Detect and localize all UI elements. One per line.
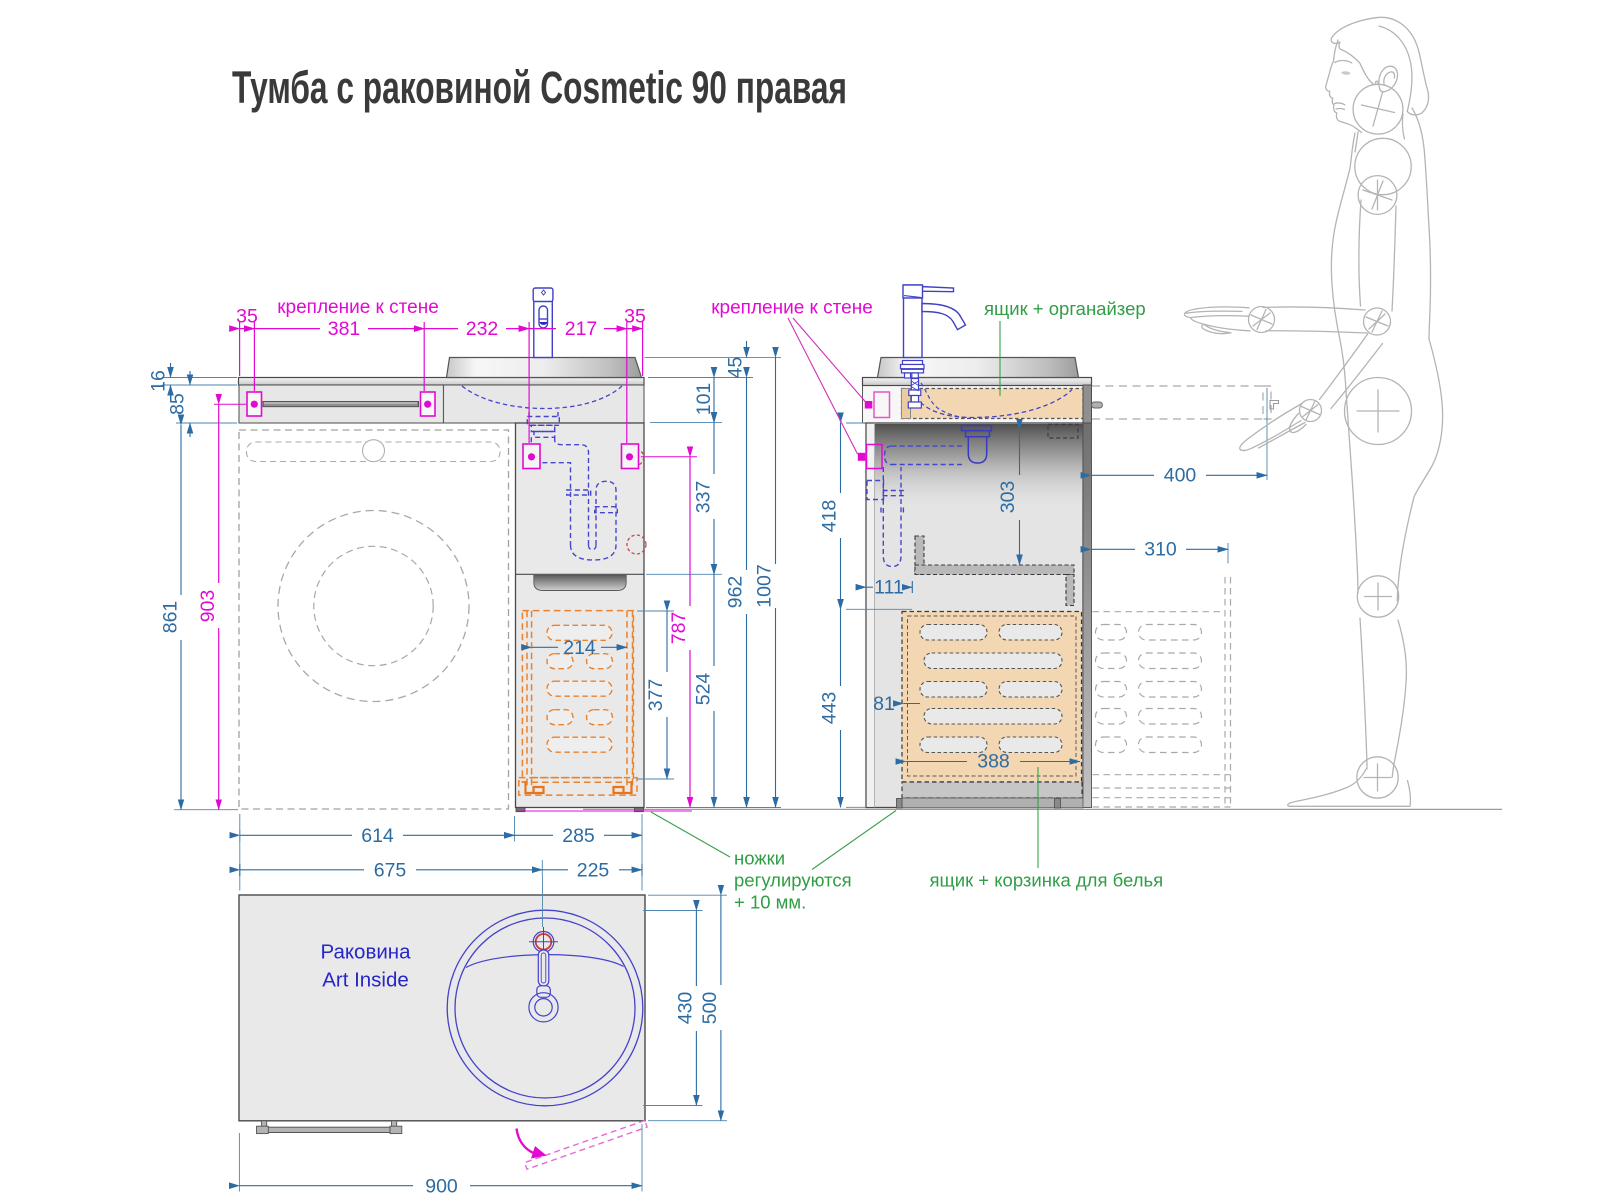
svg-text:крепление к стене: крепление к стене — [277, 297, 439, 318]
svg-text:388: 388 — [977, 751, 1010, 773]
svg-text:443: 443 — [819, 692, 841, 725]
svg-text:214: 214 — [563, 637, 596, 659]
svg-text:217: 217 — [565, 318, 598, 340]
svg-text:81: 81 — [873, 693, 895, 715]
svg-text:крепление к стене: крепление к стене — [711, 298, 873, 319]
svg-text:903: 903 — [197, 590, 219, 623]
svg-text:+ 10 мм.: + 10 мм. — [734, 892, 806, 913]
svg-text:524: 524 — [693, 673, 715, 706]
svg-text:16: 16 — [148, 370, 170, 392]
svg-text:232: 232 — [466, 318, 499, 340]
svg-text:1007: 1007 — [754, 564, 776, 607]
svg-text:регулируются: регулируются — [734, 870, 852, 891]
svg-text:Тумба с раковиной Cosmetic 90: Тумба с раковиной Cosmetic 90 правая — [232, 62, 847, 113]
svg-text:861: 861 — [160, 601, 182, 634]
svg-text:303: 303 — [997, 481, 1019, 514]
svg-text:285: 285 — [562, 825, 595, 847]
svg-text:45: 45 — [725, 357, 747, 379]
svg-text:85: 85 — [167, 393, 189, 415]
svg-text:962: 962 — [725, 576, 747, 609]
svg-text:Раковина: Раковина — [320, 941, 411, 964]
svg-text:381: 381 — [328, 318, 361, 340]
svg-text:Art Inside: Art Inside — [322, 969, 409, 992]
svg-text:675: 675 — [374, 860, 407, 882]
svg-text:35: 35 — [236, 306, 258, 328]
svg-text:614: 614 — [361, 825, 394, 847]
svg-text:ящик + корзинка для белья: ящик + корзинка для белья — [930, 870, 1164, 891]
svg-text:ящик + органайзер: ящик + органайзер — [984, 298, 1146, 319]
svg-text:418: 418 — [819, 500, 841, 533]
svg-text:111: 111 — [874, 577, 904, 599]
svg-text:500: 500 — [699, 992, 721, 1025]
svg-text:ножки: ножки — [734, 848, 785, 869]
svg-text:787: 787 — [668, 612, 690, 645]
svg-text:225: 225 — [577, 860, 610, 882]
svg-text:900: 900 — [425, 1175, 458, 1197]
svg-text:400: 400 — [1164, 465, 1197, 487]
svg-text:310: 310 — [1144, 539, 1177, 561]
svg-text:337: 337 — [693, 481, 715, 514]
svg-text:430: 430 — [675, 992, 697, 1025]
svg-text:377: 377 — [645, 679, 667, 712]
svg-text:35: 35 — [624, 306, 646, 328]
svg-text:101: 101 — [693, 383, 715, 416]
